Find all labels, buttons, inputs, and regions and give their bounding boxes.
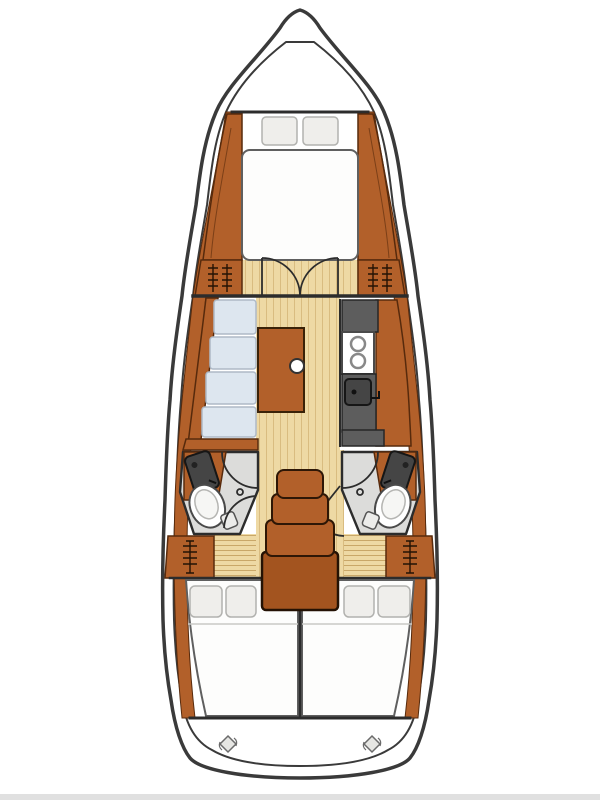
table-knob: [290, 359, 304, 373]
hanging-locker-fwd-right: [358, 260, 405, 296]
sink-drain: [352, 390, 357, 395]
galley: [340, 300, 411, 446]
companionway-step: [266, 520, 334, 556]
forward-pillow-left: [262, 117, 297, 145]
aft-pillow: [190, 586, 222, 617]
galley-sink: [345, 379, 371, 405]
forward-pillow-right: [303, 117, 338, 145]
settee-cushion: [206, 372, 256, 404]
settee-cushion: [202, 407, 256, 437]
aft-pillow: [226, 586, 256, 617]
galley-counter-top: [342, 300, 378, 332]
slatted-shelf-right: [344, 534, 386, 578]
hanging-locker-fwd-left: [195, 260, 242, 296]
v-berth-bed: [242, 150, 358, 260]
slatted-shelf-left: [214, 534, 256, 578]
companionway-step: [277, 470, 323, 498]
settee-cushion: [214, 300, 256, 334]
settee-cushion: [210, 337, 256, 369]
stove-burner: [351, 354, 365, 368]
settee-base-trim: [183, 439, 258, 450]
stove-burner: [351, 337, 365, 351]
aft-pillow: [378, 586, 410, 617]
boat-floorplan-page: Sailboat interior layout floor plan (top…: [0, 0, 600, 800]
companionway-base: [262, 552, 338, 610]
aft-pillow: [344, 586, 374, 617]
image-bottom-edge: [0, 794, 600, 800]
floor-plan: [0, 0, 600, 800]
galley-counter-bottom: [342, 430, 384, 446]
